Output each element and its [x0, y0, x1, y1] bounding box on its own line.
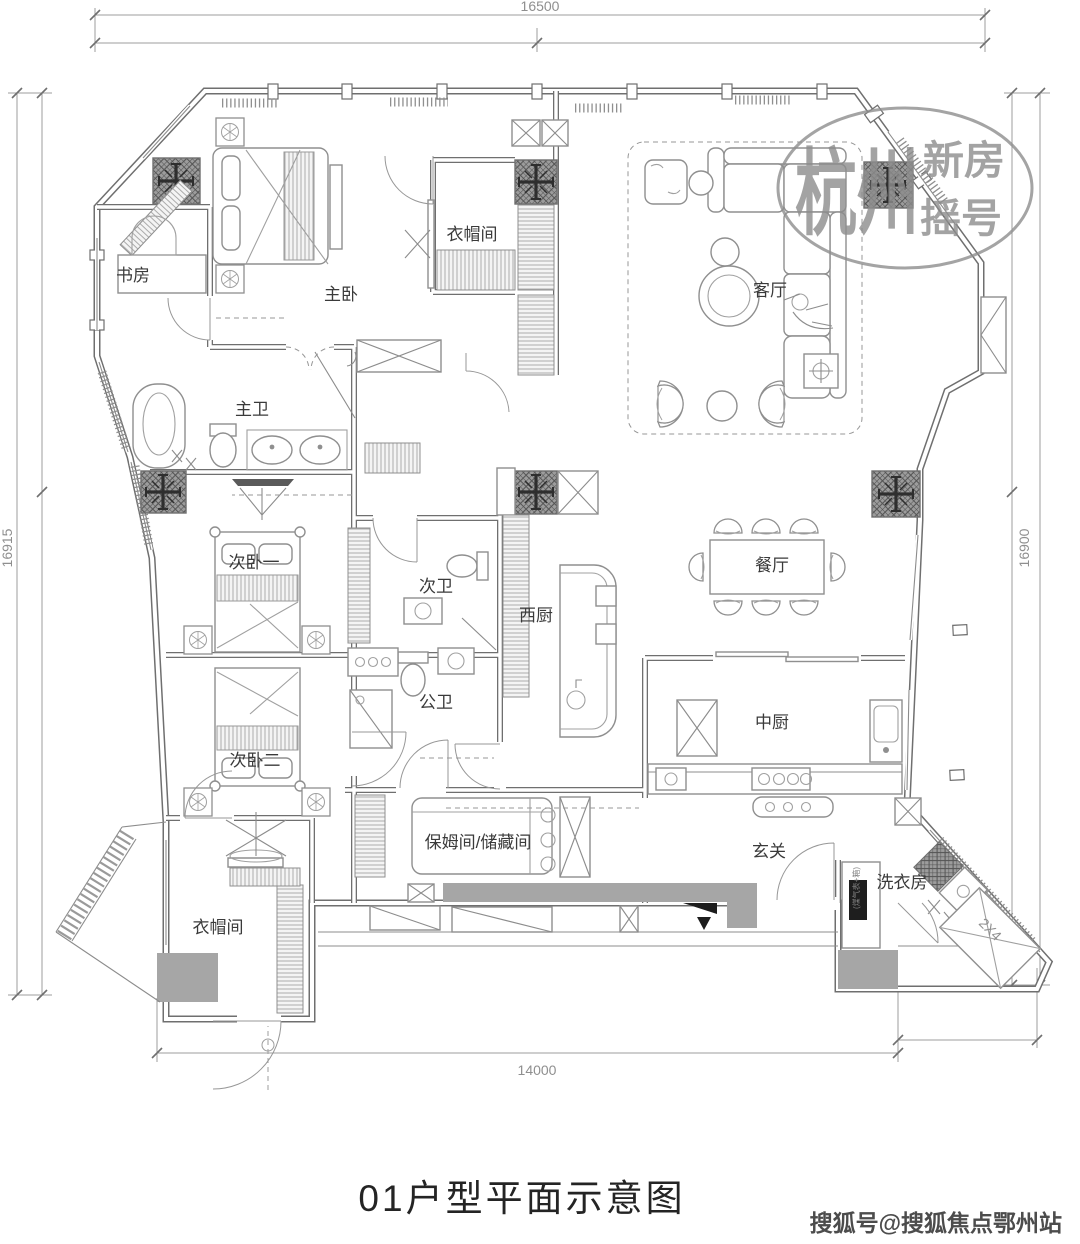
room-label-foyer: 玄关: [752, 842, 786, 861]
watermark-brand: 杭州: [795, 141, 919, 246]
credit-watermark: 搜狐号@搜狐焦点鄂州站: [810, 1204, 1062, 1238]
room-label-chinese-kitchen: 中厨: [755, 713, 789, 732]
gas-meter-note: (煤气表+箱): [851, 867, 861, 909]
floor-plan-canvas: 16500 14000 16915 16900: [0, 0, 1080, 1244]
room-label-west-kitchen: 西厨: [519, 606, 553, 625]
room-label-master-bath: 主卫: [235, 400, 269, 419]
dim-right: 16900: [1016, 528, 1032, 567]
floor-plan-page: 16500 14000 16915 16900: [0, 0, 1080, 1244]
room-label-public-bath: 公卫: [419, 693, 453, 712]
dim-top: 16500: [521, 0, 560, 14]
room-label-cloakroom-top: 衣帽间: [447, 225, 498, 244]
room-label-cloakroom-bottom: 衣帽间: [193, 918, 244, 937]
watermark-line1: 新房: [923, 139, 1005, 183]
room-label-second-bath: 次卫: [419, 577, 453, 596]
dim-left: 16915: [0, 528, 15, 567]
room-label-master-bedroom: 主卧: [324, 285, 358, 304]
room-label-second-bedroom-2: 次卧二: [230, 751, 281, 770]
room-label-laundry: 洗衣房: [877, 873, 928, 892]
room-label-maid-storage: 保姆间/储藏间: [425, 833, 532, 852]
watermark-stamp: 杭州 新房 摇号: [778, 108, 1032, 268]
room-label-living-room: 客厅: [753, 281, 787, 300]
watermark-line2: 摇号: [920, 197, 1002, 241]
room-label-study: 书房: [116, 266, 150, 285]
room-label-dining-room: 餐厅: [755, 556, 789, 575]
dim-bottom: 14000: [518, 1062, 557, 1078]
room-label-second-bedroom-1: 次卧一: [229, 553, 280, 572]
